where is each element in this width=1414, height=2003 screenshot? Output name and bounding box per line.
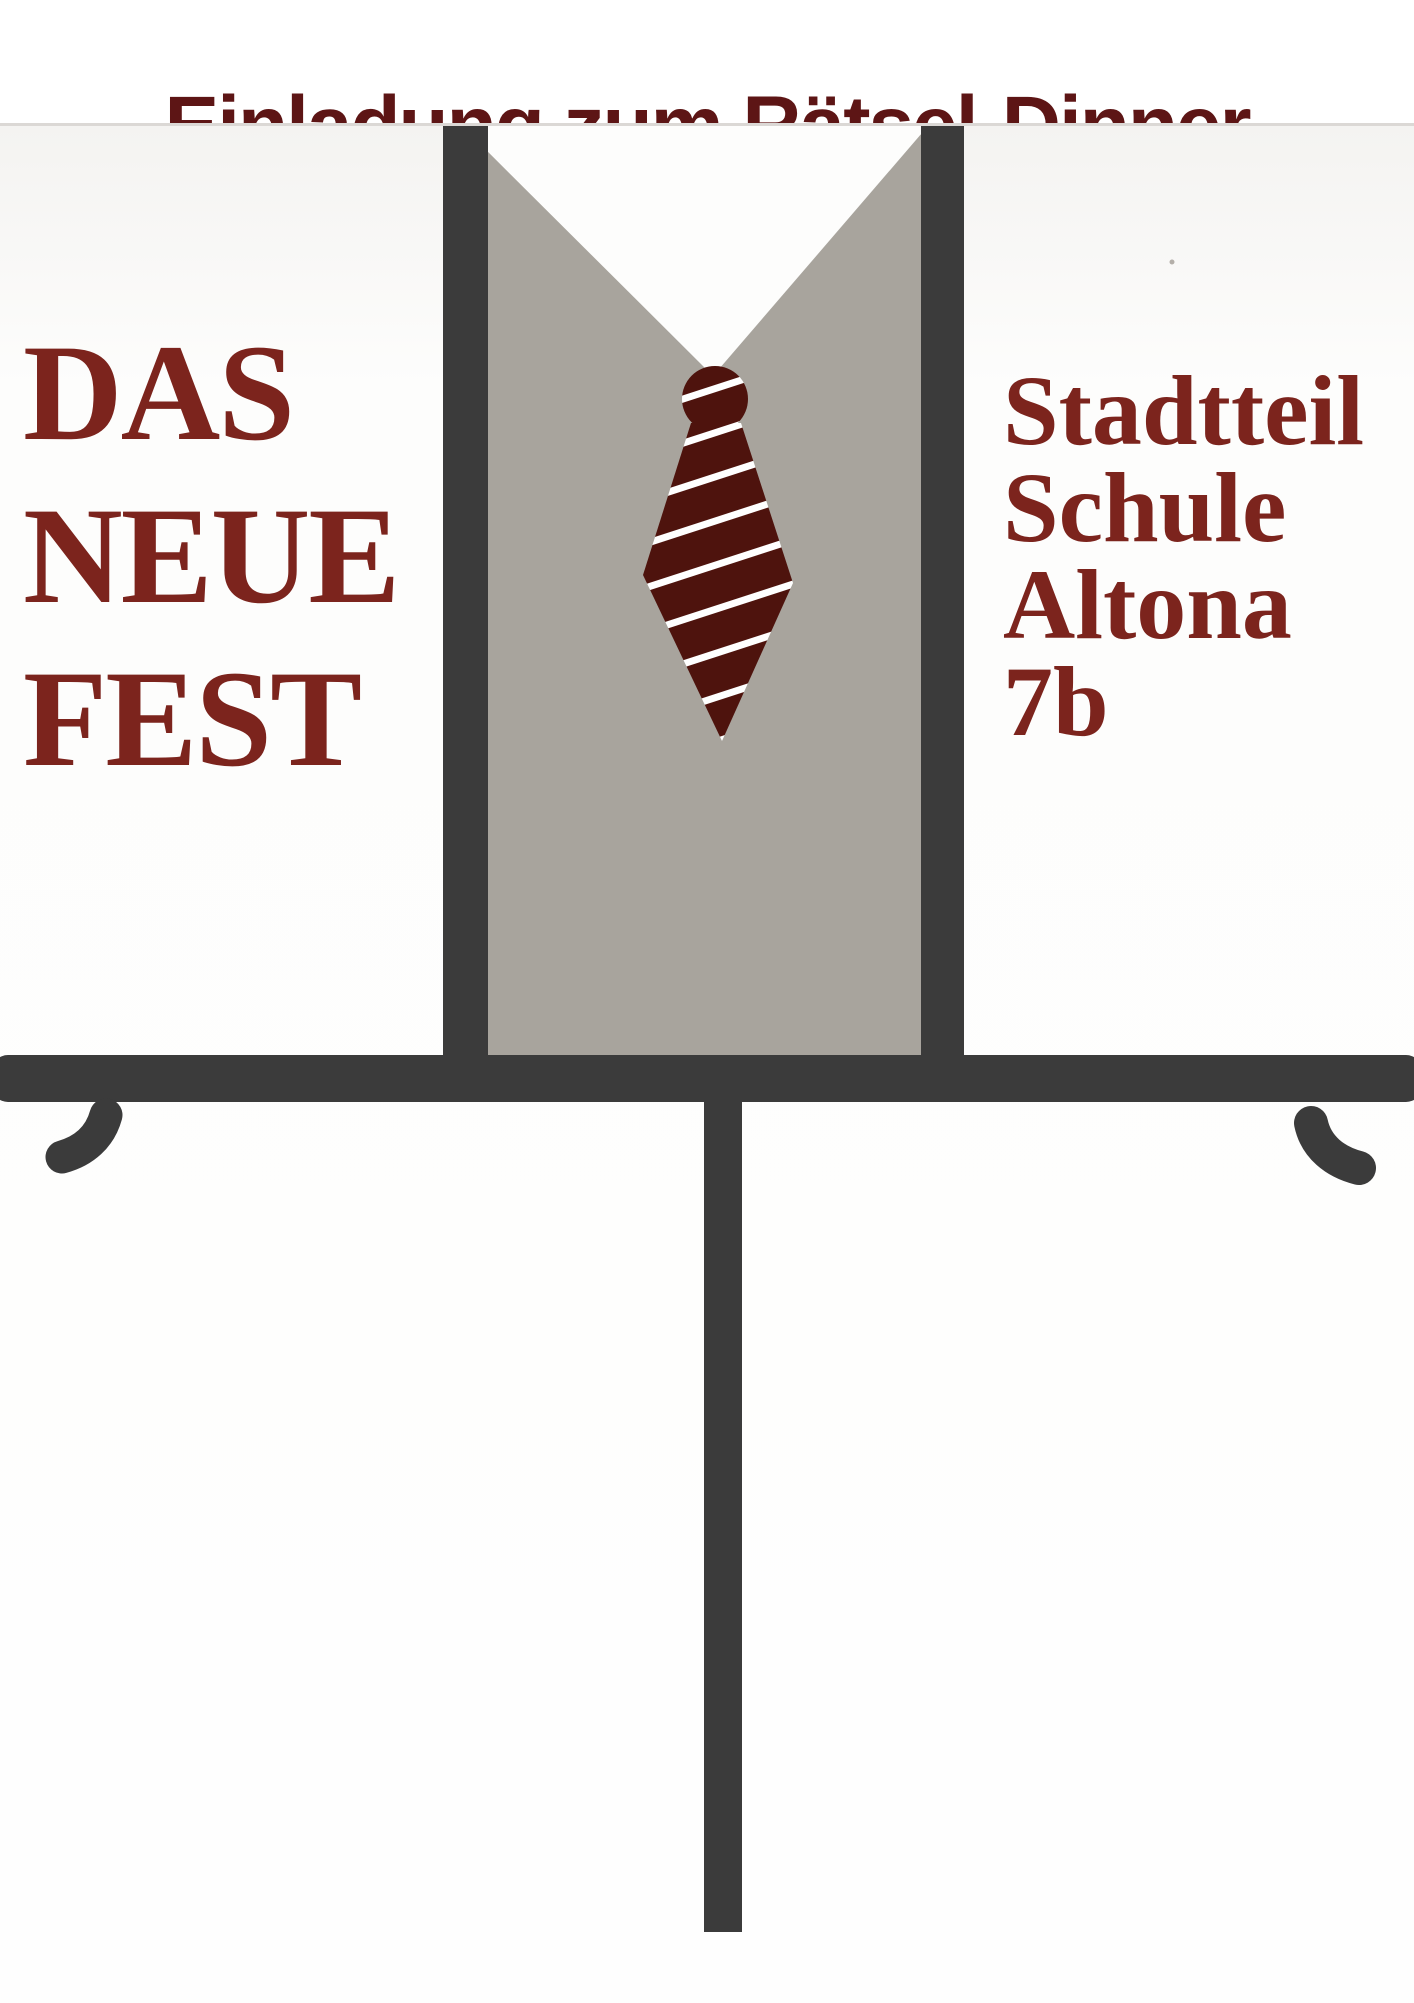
left-accent-stroke bbox=[62, 1115, 106, 1157]
school-caption-line: Stadtteil bbox=[1003, 362, 1364, 459]
event-title-line: DAS bbox=[23, 311, 398, 474]
event-title-line: FEST bbox=[23, 637, 398, 800]
school-caption: Stadtteil Schule Altona 7b bbox=[1003, 362, 1364, 750]
event-title-line: NEUE bbox=[23, 474, 398, 637]
necktie-knot bbox=[682, 366, 748, 432]
school-caption-line: Schule bbox=[1003, 459, 1364, 556]
speck-mark bbox=[1170, 260, 1175, 265]
school-caption-line: Altona bbox=[1003, 556, 1364, 653]
right-frame-bar bbox=[921, 126, 964, 1062]
left-frame-bar bbox=[443, 126, 488, 1062]
table-leg bbox=[704, 1079, 742, 1932]
right-accent-stroke bbox=[1311, 1123, 1359, 1168]
event-title: DAS NEUE FEST bbox=[23, 311, 398, 800]
school-caption-line: 7b bbox=[1003, 653, 1364, 750]
